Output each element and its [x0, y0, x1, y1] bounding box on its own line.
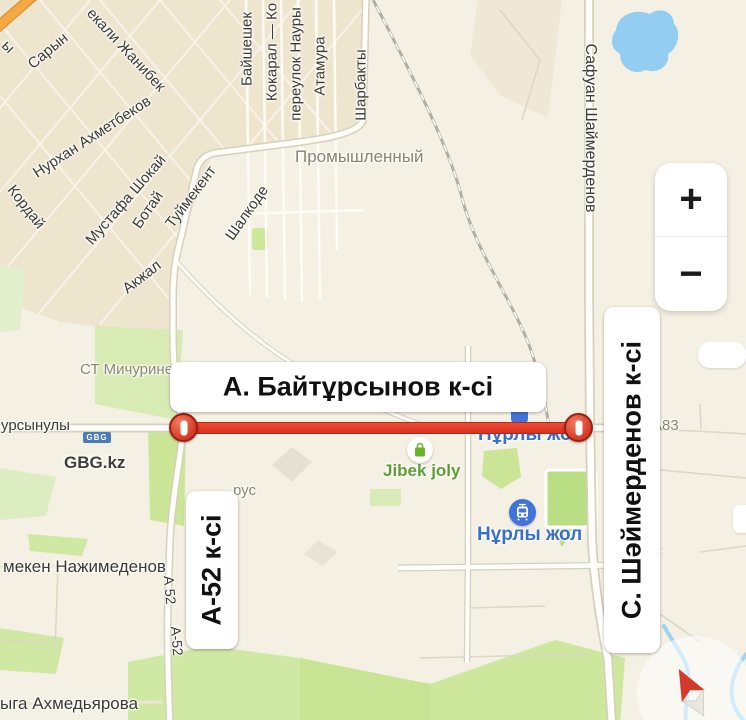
partial-white-plate-right — [733, 505, 746, 533]
street-label-baisheshek: Байшешек — [239, 12, 256, 86]
zoom-out-button[interactable]: − — [655, 237, 727, 311]
street-label-akhmedyarova: ыга Ахмедьярова — [0, 694, 138, 714]
left-cross-street-badge-text: А-52 к-сі — [197, 514, 228, 625]
right-cross-street-badge[interactable]: С. Шәймерденов к-сі — [604, 307, 660, 653]
street-label-safuan-shaimerdenov: Сафуан Шаймерденов — [581, 43, 599, 212]
street-label-ursynuly: урсынулы — [1, 417, 70, 434]
right-cross-street-badge-text: С. Шәймерденов к-сі — [617, 341, 648, 619]
left-cross-street-badge[interactable]: А-52 к-сі — [186, 491, 238, 649]
district-label-michurinets: СТ Мичуринец — [80, 361, 182, 378]
gbg-logo-icon[interactable]: GBG — [83, 432, 111, 443]
street-label-atamura: Атамура — [312, 36, 329, 95]
closed-street-badge[interactable]: А. Байтұрсынов к-сі — [170, 362, 546, 412]
district-label-promyshlenny: Промышленный — [295, 147, 424, 167]
road-closure-marker-left[interactable] — [169, 413, 198, 442]
street-label-nazhimedenov: мекен Нажимеденов — [3, 557, 166, 577]
station-label-nurly-zhol: Нұрлы жол — [477, 524, 582, 546]
poi-label-gbg: GBG.kz — [64, 453, 125, 473]
closed-road-segment[interactable] — [176, 423, 586, 433]
poi-label-jibek-joly: Jibek joly — [383, 461, 460, 481]
road-number-a52-lower: А-52 — [168, 626, 187, 657]
zoom-in-button[interactable]: + — [655, 163, 727, 237]
metro-station-icon[interactable] — [509, 499, 536, 526]
zoom-control: + − — [655, 163, 727, 311]
street-label-pereulok-naury: переулок Науры — [288, 7, 305, 121]
map-canvas[interactable]: ы Сарын екали Жанибек Нурхан Ахметбеков … — [0, 0, 746, 720]
road-number-a52-upper: А 52 — [161, 575, 179, 605]
shopping-bag-icon[interactable] — [407, 437, 433, 463]
partial-white-plate-top — [698, 342, 746, 368]
compass-needle-icon — [659, 660, 723, 720]
street-label-sharbakty: Шарбакты — [353, 49, 370, 120]
closed-street-badge-text: А. Байтұрсынов к-сі — [223, 372, 493, 403]
road-closure-marker-right[interactable] — [564, 413, 593, 442]
street-label-kokaral: Кокарал — Ко — [264, 3, 281, 101]
